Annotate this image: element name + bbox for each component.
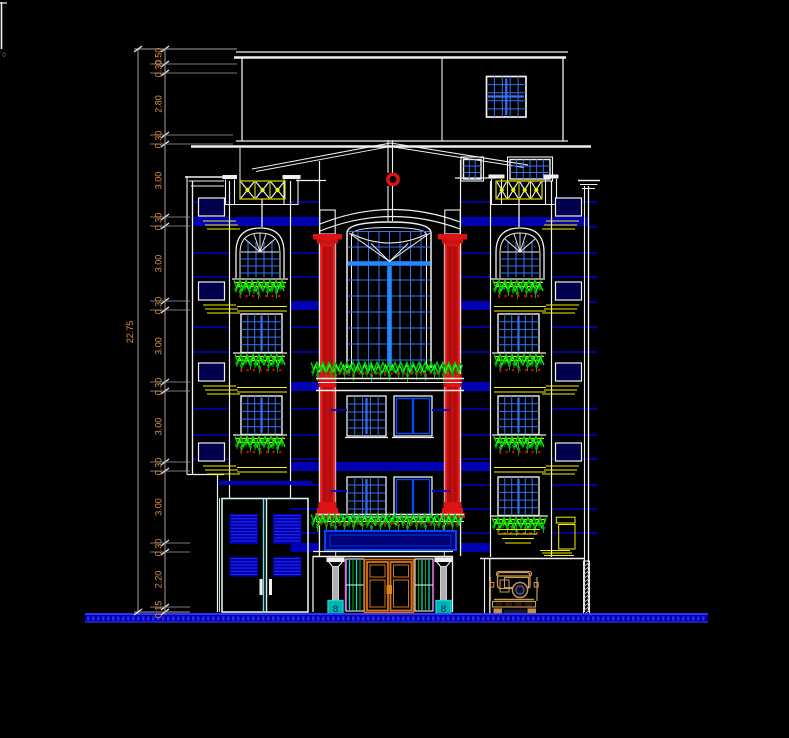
svg-text:3.00: 3.00 [154, 255, 164, 273]
svg-text:2.80: 2.80 [154, 95, 164, 113]
svg-text:0.30: 0.30 [154, 60, 164, 78]
svg-text:0.30: 0.30 [154, 539, 164, 557]
svg-text:2.20: 2.20 [154, 571, 164, 589]
svg-text:3.00: 3.00 [154, 418, 164, 436]
svg-text:0.30: 0.30 [154, 213, 164, 231]
svg-text:3.00: 3.00 [154, 337, 164, 355]
svg-text:0.30: 0.30 [154, 458, 164, 476]
svg-text:0.30: 0.30 [154, 378, 164, 396]
svg-text:0.30: 0.30 [154, 297, 164, 315]
svg-text:22.75: 22.75 [125, 321, 135, 344]
svg-text:3.00: 3.00 [154, 172, 164, 190]
svg-text:0.30: 0.30 [154, 131, 164, 149]
svg-text:3.00: 3.00 [154, 498, 164, 516]
svg-text:0.15: 0.15 [154, 601, 164, 619]
